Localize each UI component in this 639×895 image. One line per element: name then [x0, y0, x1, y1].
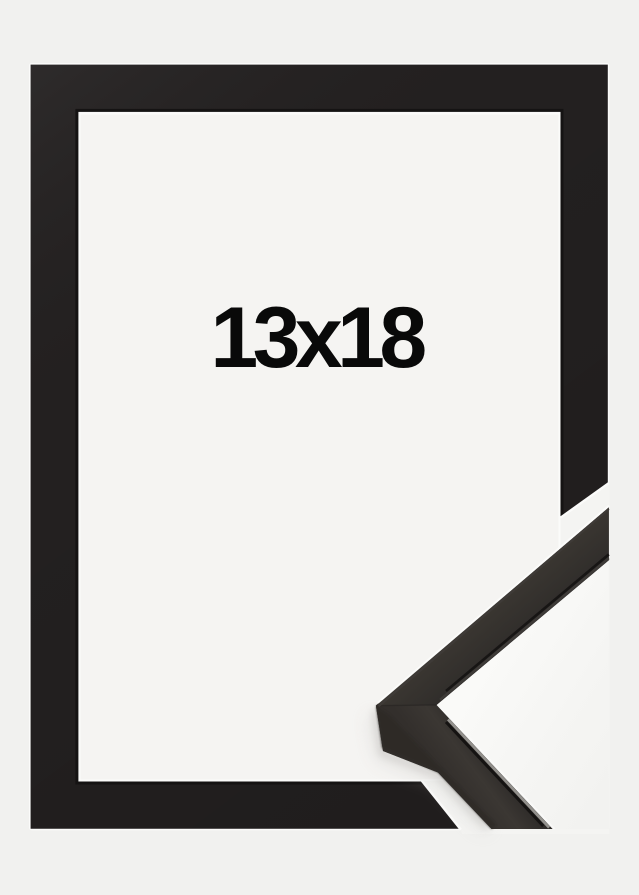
svg-text:13x18: 13x18 — [210, 290, 427, 386]
